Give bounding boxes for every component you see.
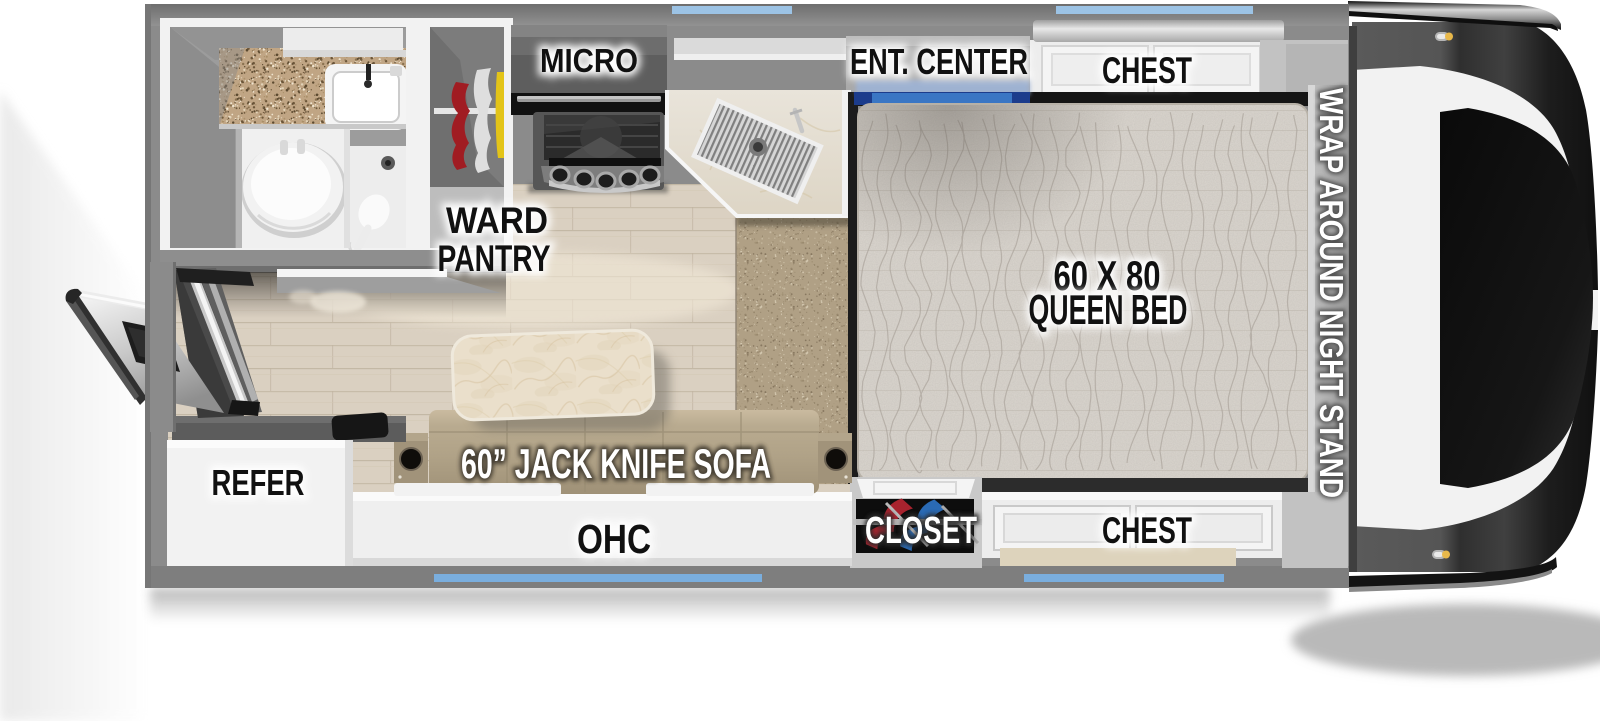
svg-text:QUEEN BED: QUEEN BED [1029,286,1188,333]
svg-text:WRAP AROUND NIGHT STAND: WRAP AROUND NIGHT STAND [1313,88,1350,498]
svg-text:OHC: OHC [577,516,651,562]
svg-text:REFER: REFER [212,462,305,503]
svg-text:WARD: WARD [446,200,548,241]
svg-text:ENT. CENTER: ENT. CENTER [850,41,1028,82]
svg-text:CLOSET: CLOSET [865,510,977,552]
svg-text:PANTRY: PANTRY [438,238,551,279]
svg-text:MICRO: MICRO [540,42,638,79]
svg-text:CHEST: CHEST [1102,50,1192,91]
svg-text:CHEST: CHEST [1102,510,1192,551]
svg-text:60” JACK KNIFE SOFA: 60” JACK KNIFE SOFA [461,440,771,487]
